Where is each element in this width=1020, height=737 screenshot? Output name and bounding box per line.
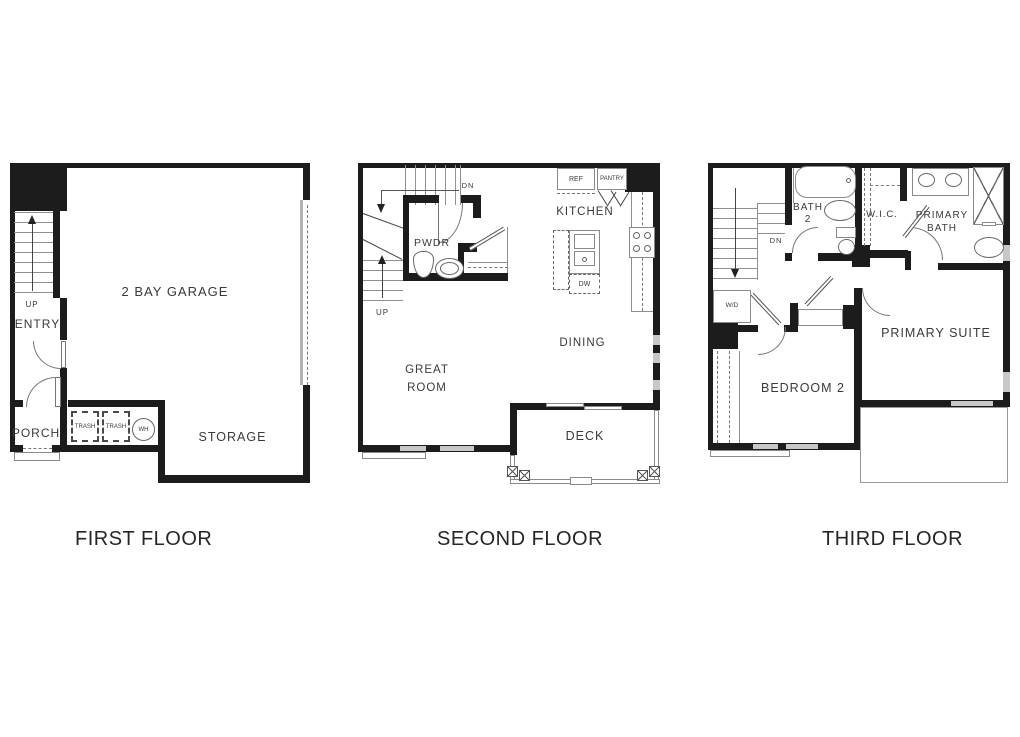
door-arc (33, 341, 61, 369)
closet-track-dashed (729, 351, 730, 443)
entry-label: ENTRY (10, 318, 65, 330)
window (753, 444, 778, 449)
door-leaf (61, 341, 66, 368)
wd-label: W/D (726, 303, 739, 310)
bedroom2-label: BEDROOM 2 (743, 382, 863, 395)
wall (358, 445, 510, 452)
stairs-arrow-shaft (735, 188, 736, 271)
closet-rod-dashed (468, 267, 508, 268)
refrigerator: REF (557, 168, 595, 190)
shower-glass (974, 168, 1003, 224)
window (440, 446, 474, 451)
sink (918, 173, 935, 187)
window (786, 444, 818, 449)
up-arrow (378, 255, 386, 264)
bath2-label: BATH (786, 203, 830, 213)
up-label: UP (370, 309, 395, 317)
wh-label: WH (139, 427, 149, 433)
window (951, 401, 993, 406)
third-floor-title: THIRD FLOOR (822, 528, 963, 551)
closet-shelf (468, 262, 508, 263)
bifold-door (620, 192, 630, 207)
closet-track-dashed (717, 351, 718, 443)
up-label: UP (17, 301, 47, 309)
pantry: PANTRY (597, 168, 627, 190)
deck-label: DECK (546, 430, 624, 443)
sink (945, 173, 962, 187)
stairs (757, 203, 785, 236)
second-floor-title: SECOND FLOOR (437, 528, 603, 551)
toilet (974, 237, 1004, 258)
wall (10, 400, 23, 407)
up-arrow (28, 215, 36, 224)
window (1003, 372, 1010, 392)
wall (158, 475, 310, 483)
wall (158, 400, 165, 483)
down-arrow (377, 204, 385, 213)
door-leaf-angled (469, 227, 505, 251)
primary-bath-label: BATH (910, 224, 974, 234)
counter-edge (631, 311, 653, 312)
roof-outline (860, 407, 1008, 483)
second-floor-plan: DN UP PWDR KITCHEN REF PANTRY (358, 163, 660, 488)
dn-arrow-shaft (381, 190, 382, 204)
stair-edge (793, 168, 794, 203)
primary-suite-label: PRIMARY SUITE (866, 327, 1006, 340)
wall (900, 163, 907, 201)
slider-door (584, 406, 622, 410)
dn-leader-line (381, 190, 459, 191)
toilet (838, 239, 855, 255)
wall-solid-block (10, 168, 67, 211)
wall (358, 163, 363, 452)
door-arc (758, 327, 786, 355)
stairs-arrow-shaft (32, 223, 33, 291)
window (400, 446, 426, 451)
wall (708, 443, 860, 450)
stairs-arrow-shaft (382, 262, 383, 298)
storage-label: STORAGE (180, 431, 285, 444)
washer-dryer: W/D (713, 290, 751, 323)
water-heater: WH (132, 418, 155, 441)
linen-closet (798, 309, 843, 326)
window (653, 353, 660, 363)
wall-solid-block (708, 321, 738, 349)
porch-threshold-dashed (23, 448, 52, 449)
first-floor-plan: TRASH TRASH WH UP ENTRY PORCH 2 BAY GARA… (10, 163, 310, 488)
wall (53, 210, 60, 298)
dn-label: DN (762, 237, 790, 245)
deck-post (649, 466, 660, 477)
toilet-tank (836, 227, 856, 238)
door-arc (792, 227, 818, 253)
third-floor-plan: DN W/D BATH 2 W.I.C. (708, 163, 1010, 488)
sink (574, 234, 595, 249)
window (1003, 245, 1010, 261)
garage-label: 2 BAY GARAGE (100, 285, 250, 298)
porch-stoop (14, 452, 60, 461)
deck-post (637, 470, 648, 481)
deck-stair (570, 477, 592, 485)
great-room-label: ROOM (386, 383, 468, 395)
wall (653, 165, 660, 405)
dw-label: DW (579, 281, 591, 288)
garage-door (300, 200, 303, 385)
burner (644, 232, 651, 239)
bifold-door (598, 190, 608, 205)
door-leaf-angled (805, 276, 834, 307)
closet-edge (507, 227, 508, 273)
closet-rod-dashed (870, 168, 871, 246)
wall (68, 400, 158, 407)
trash-label: TRASH (106, 424, 126, 430)
great-room-label: GREAT (386, 365, 468, 377)
dishwasher: DW (569, 274, 600, 294)
tub-faucet (846, 178, 851, 183)
pantry-label: PANTRY (600, 176, 624, 182)
trash-bin: TRASH (102, 411, 130, 442)
stairs (14, 212, 53, 299)
closet-rod-dashed (864, 168, 865, 246)
wall (510, 403, 517, 455)
door-arc (862, 288, 890, 316)
shower-curb (982, 222, 996, 226)
deck-post (507, 466, 518, 477)
wall (1003, 163, 1010, 407)
slider-door (546, 403, 584, 407)
down-arrow (731, 269, 739, 278)
trash-label: TRASH (75, 424, 95, 430)
cooktop (629, 227, 655, 258)
toilet-bowl (440, 262, 459, 275)
burner (644, 245, 651, 252)
wall (461, 195, 481, 203)
dn-label: DN (454, 182, 482, 190)
closet-edge (739, 351, 740, 443)
stairs (363, 260, 403, 302)
first-floor-title: FIRST FLOOR (75, 528, 212, 551)
window-ledge (362, 452, 426, 459)
primary-bath-label: PRIMARY (910, 211, 974, 221)
ref-label: REF (569, 176, 583, 183)
wall (855, 163, 862, 248)
stair-edge (757, 203, 758, 280)
door-leaf-angled (751, 293, 782, 326)
burner (633, 232, 640, 239)
wall (868, 250, 908, 258)
pwdr-label: PWDR (406, 238, 458, 249)
garage-door-dashed (307, 205, 308, 385)
door-arc (26, 377, 56, 407)
wall (303, 163, 310, 200)
window (653, 335, 660, 345)
trash-bin: TRASH (71, 411, 99, 442)
wall (60, 368, 67, 402)
wall (785, 253, 792, 261)
wall (10, 168, 15, 452)
window (653, 380, 660, 390)
wic-label: W.I.C. (858, 210, 906, 220)
kitchen-label: KITCHEN (540, 207, 630, 219)
dining-label: DINING (540, 338, 625, 350)
window-ledge (710, 450, 790, 457)
bath2-label: 2 (786, 215, 830, 225)
island-counter-dashed (553, 230, 569, 290)
wall (843, 305, 854, 329)
wall (938, 263, 1010, 270)
burner (633, 245, 640, 252)
wall (303, 385, 310, 483)
deck-post (519, 470, 530, 481)
sink-drain (582, 257, 587, 262)
winder-step (363, 213, 405, 229)
closet-shelf-dashed (870, 185, 900, 186)
floorplan-sheet: TRASH TRASH WH UP ENTRY PORCH 2 BAY GARA… (0, 0, 1020, 737)
ref-counter-dashed (557, 193, 595, 194)
porch-label: PORCH (10, 427, 62, 439)
wall (473, 203, 481, 218)
